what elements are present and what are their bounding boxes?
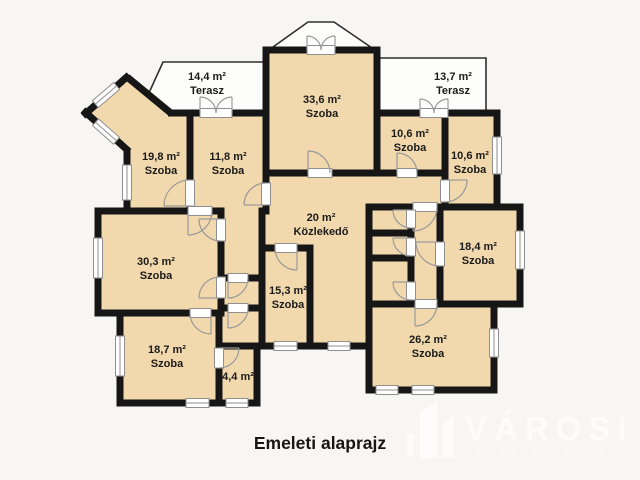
room-label-terasz-14-4-name: Terasz [190, 85, 225, 97]
building-logo-icon [407, 401, 454, 458]
room-label-szoba-26-2-name: Szoba [412, 348, 445, 360]
room-label-szoba-18-7-name: Szoba [151, 358, 184, 370]
watermark-tagline: INGATLANIRODA [468, 449, 610, 459]
watermark-brand: VÁROSI [465, 410, 634, 447]
room-label-szoba-10-6-bal-name: Szoba [394, 142, 427, 154]
watermark: VÁROSI INGATLANIRODA [407, 401, 634, 459]
room-label-szoba-18-7-area: 18,7 m² [148, 344, 186, 356]
room-label-terasz-13-7-area: 13,7 m² [434, 71, 472, 83]
room-label-kozlekedo-area: 20 m² [307, 212, 336, 224]
room-label-szoba-30-3-name: Szoba [140, 270, 173, 282]
room-label-szoba-33-6-area: 33,6 m² [303, 94, 341, 106]
room-label-szoba-18-4-area: 18,4 m² [459, 241, 497, 253]
room-label-kozlekedo-name: Közlekedő [293, 226, 348, 238]
room-label-terasz-13-7-name: Terasz [436, 85, 471, 97]
room-label-szoba-26-2-area: 26,2 m² [409, 334, 447, 346]
room-label-szoba-10-6-bal-area: 10,6 m² [391, 128, 429, 140]
floor-plan-page: 14,4 m² Terasz 33,6 m² Szoba 13,7 m² Ter… [0, 0, 640, 480]
room-label-szoba-11-8-name: Szoba [212, 165, 245, 177]
room-label-szoba-10-6-jobb-name: Szoba [454, 164, 487, 176]
room-label-szoba-15-3-name: Szoba [272, 299, 305, 311]
room-label-szoba-10-6-jobb-area: 10,6 m² [451, 150, 489, 162]
room-label-terasz-14-4-area: 14,4 m² [188, 71, 226, 83]
room-label-szoba-33-6-name: Szoba [306, 108, 339, 120]
room-label-szoba-19-8-name: Szoba [145, 165, 178, 177]
page-title: Emeleti alaprajz [254, 433, 387, 453]
floor-plan-svg: 14,4 m² Terasz 33,6 m² Szoba 13,7 m² Ter… [0, 0, 640, 480]
room-label-szoba-30-3-area: 30,3 m² [137, 256, 175, 268]
room-label-szoba-11-8-area: 11,8 m² [209, 151, 247, 163]
room-label-helyiseg-4-4-area: 4,4 m² [222, 371, 254, 383]
room-label-szoba-15-3-area: 15,3 m² [269, 285, 307, 297]
room-label-szoba-19-8-area: 19,8 m² [142, 151, 180, 163]
room-label-szoba-18-4-name: Szoba [462, 255, 495, 267]
